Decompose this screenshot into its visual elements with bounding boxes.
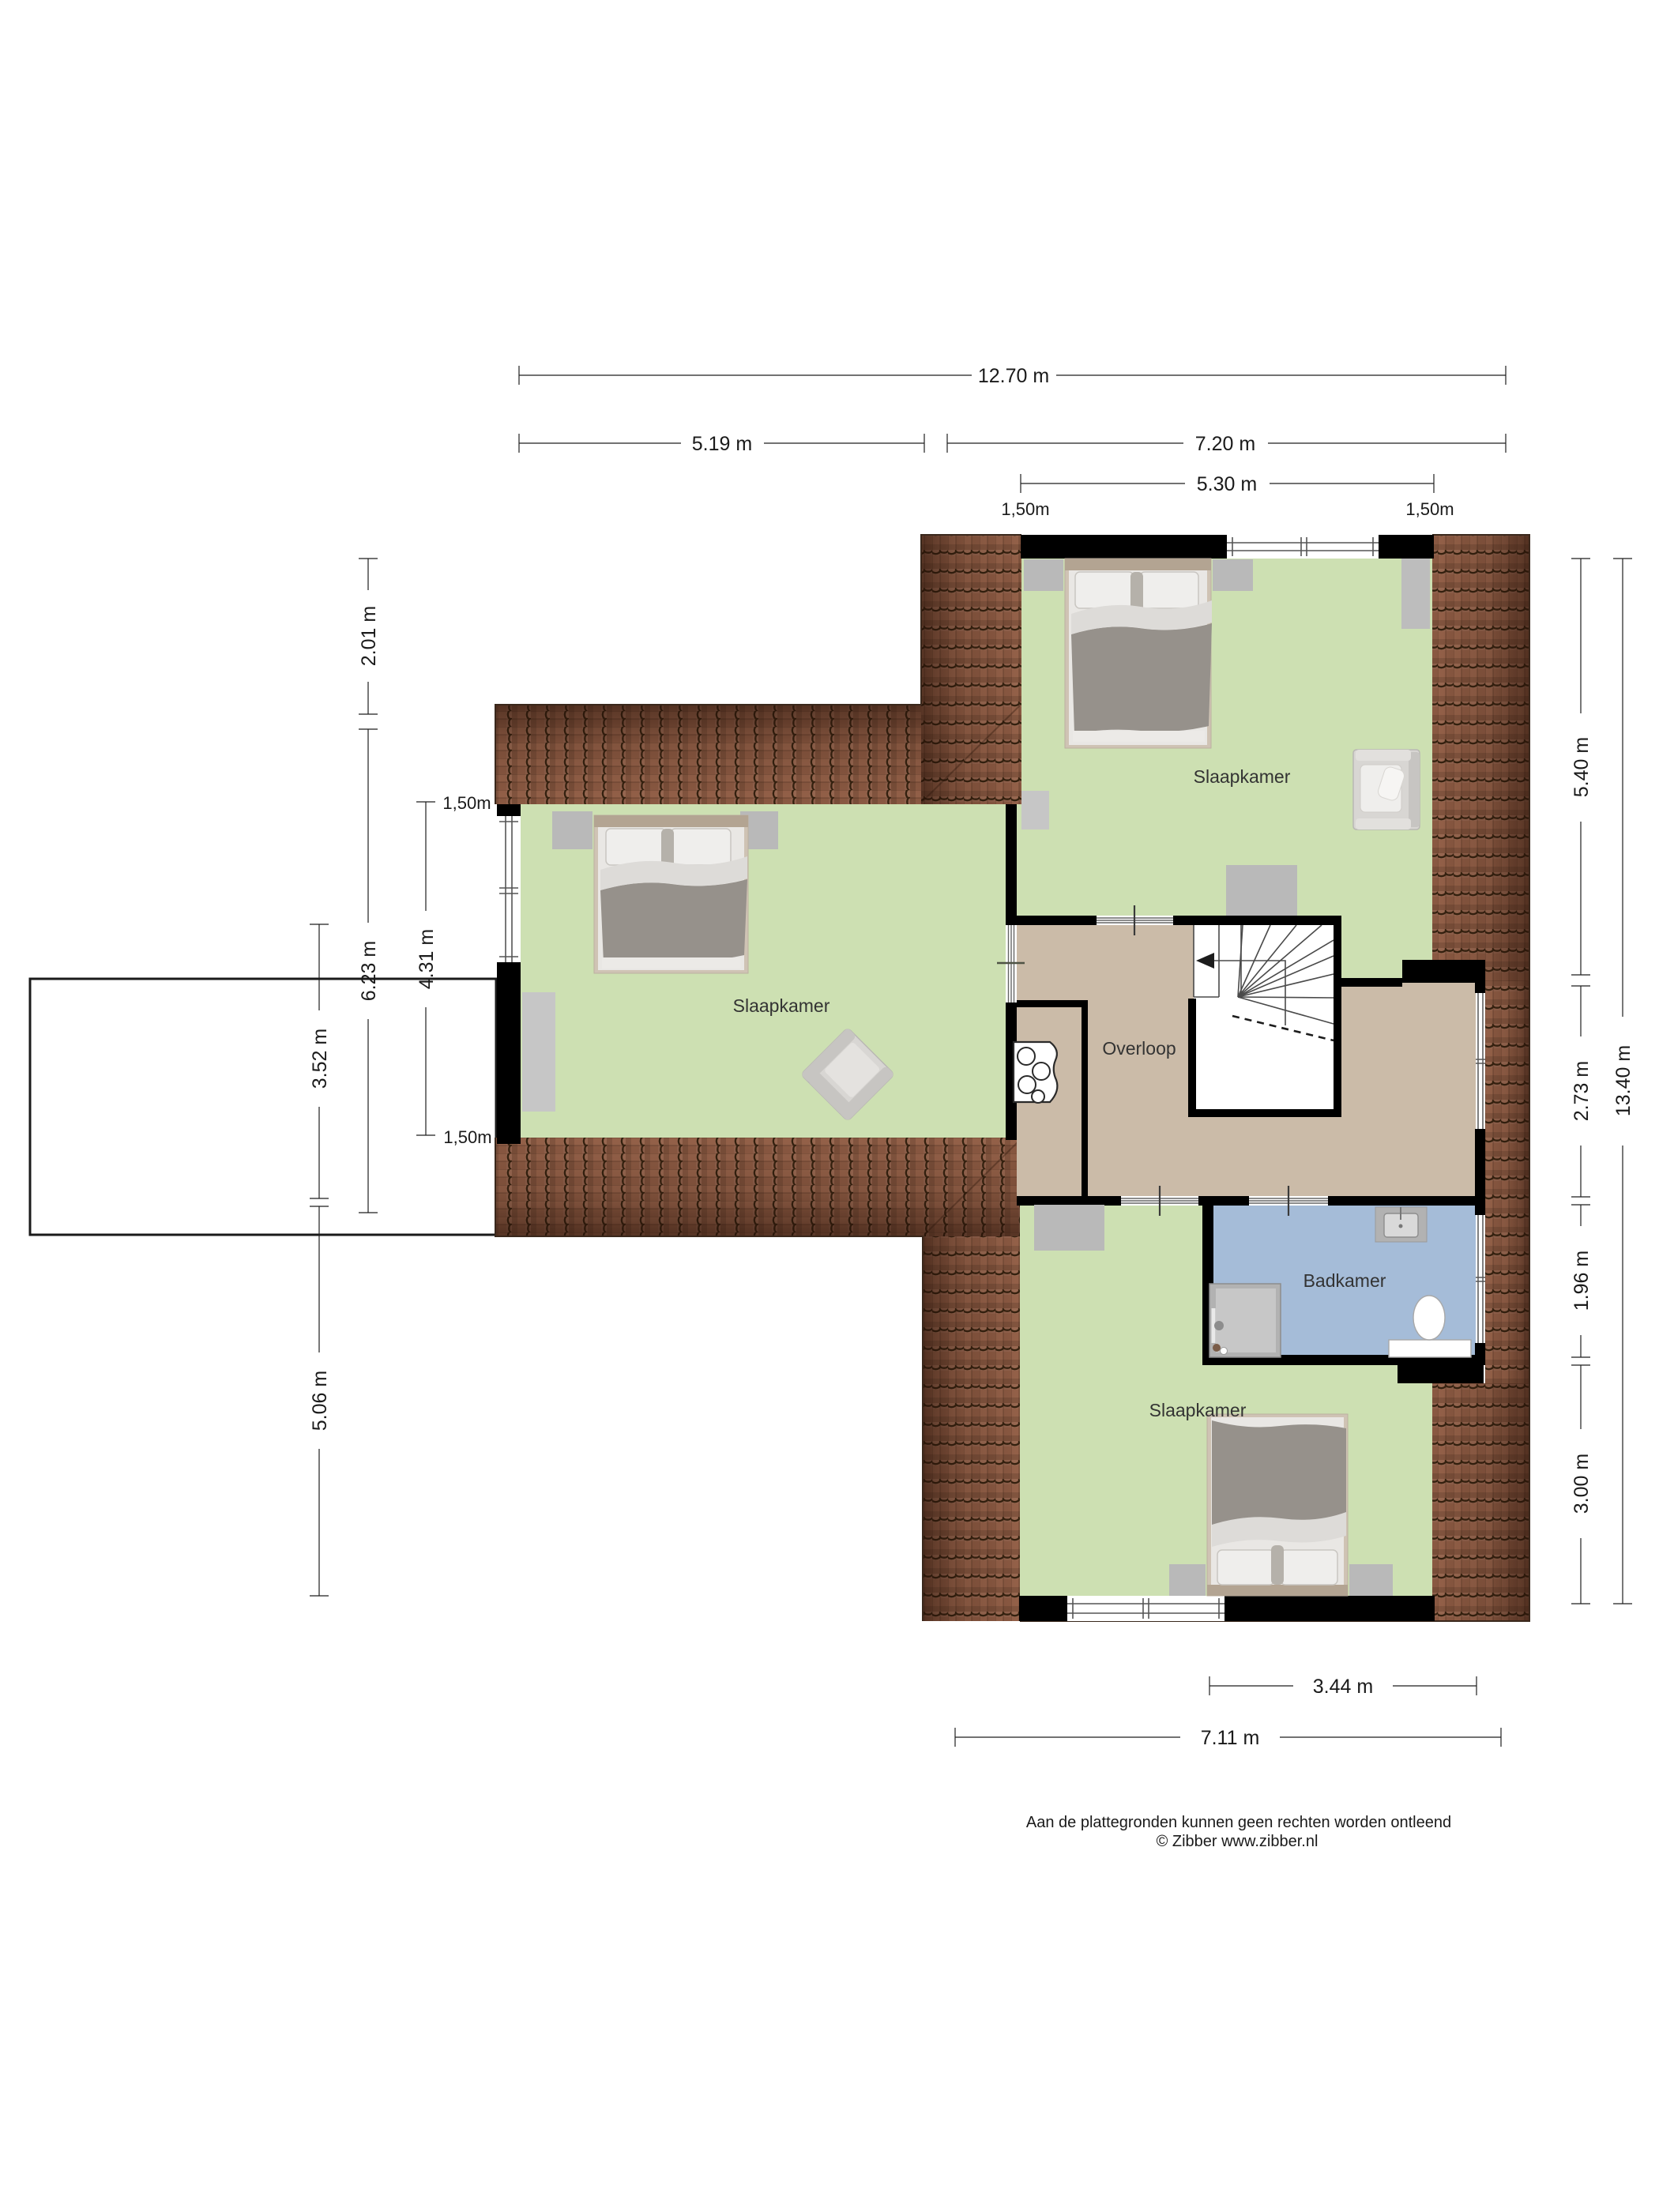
svg-text:13.40 m: 13.40 m xyxy=(1612,1045,1635,1116)
svg-text:7.11 m: 7.11 m xyxy=(1201,1727,1260,1749)
svg-text:7.20 m: 7.20 m xyxy=(1195,433,1255,455)
svg-text:5.19 m: 5.19 m xyxy=(692,433,752,455)
svg-text:1.96 m: 1.96 m xyxy=(1571,1251,1593,1311)
svg-text:2.01 m: 2.01 m xyxy=(358,606,380,666)
svg-text:3.44 m: 3.44 m xyxy=(1313,1676,1373,1698)
svg-text:Slaapkamer: Slaapkamer xyxy=(1194,766,1291,787)
svg-text:1,50m: 1,50m xyxy=(1405,499,1454,519)
svg-text:5.30 m: 5.30 m xyxy=(1197,473,1257,495)
svg-text:1,50m: 1,50m xyxy=(1001,499,1049,519)
svg-text:1,50m: 1,50m xyxy=(443,1127,491,1147)
svg-text:3.52 m: 3.52 m xyxy=(309,1029,331,1089)
svg-text:© Zibber www.zibber.nl: © Zibber www.zibber.nl xyxy=(1157,1833,1319,1850)
svg-text:4.31 m: 4.31 m xyxy=(416,929,438,989)
svg-text:12.70 m: 12.70 m xyxy=(978,365,1049,387)
svg-text:2.73 m: 2.73 m xyxy=(1571,1061,1593,1121)
svg-text:3.00 m: 3.00 m xyxy=(1571,1454,1593,1514)
svg-text:Slaapkamer: Slaapkamer xyxy=(1149,1400,1247,1420)
svg-text:5.40 m: 5.40 m xyxy=(1571,737,1593,797)
svg-text:Aan de plattegronden kunnen ge: Aan de plattegronden kunnen geen rechten… xyxy=(1026,1814,1451,1831)
svg-text:Slaapkamer: Slaapkamer xyxy=(733,995,830,1016)
svg-text:Badkamer: Badkamer xyxy=(1303,1270,1386,1291)
svg-text:1,50m: 1,50m xyxy=(442,793,491,813)
svg-text:Overloop: Overloop xyxy=(1102,1038,1176,1059)
svg-text:6.23 m: 6.23 m xyxy=(358,941,380,1001)
svg-text:5.06 m: 5.06 m xyxy=(309,1371,331,1431)
